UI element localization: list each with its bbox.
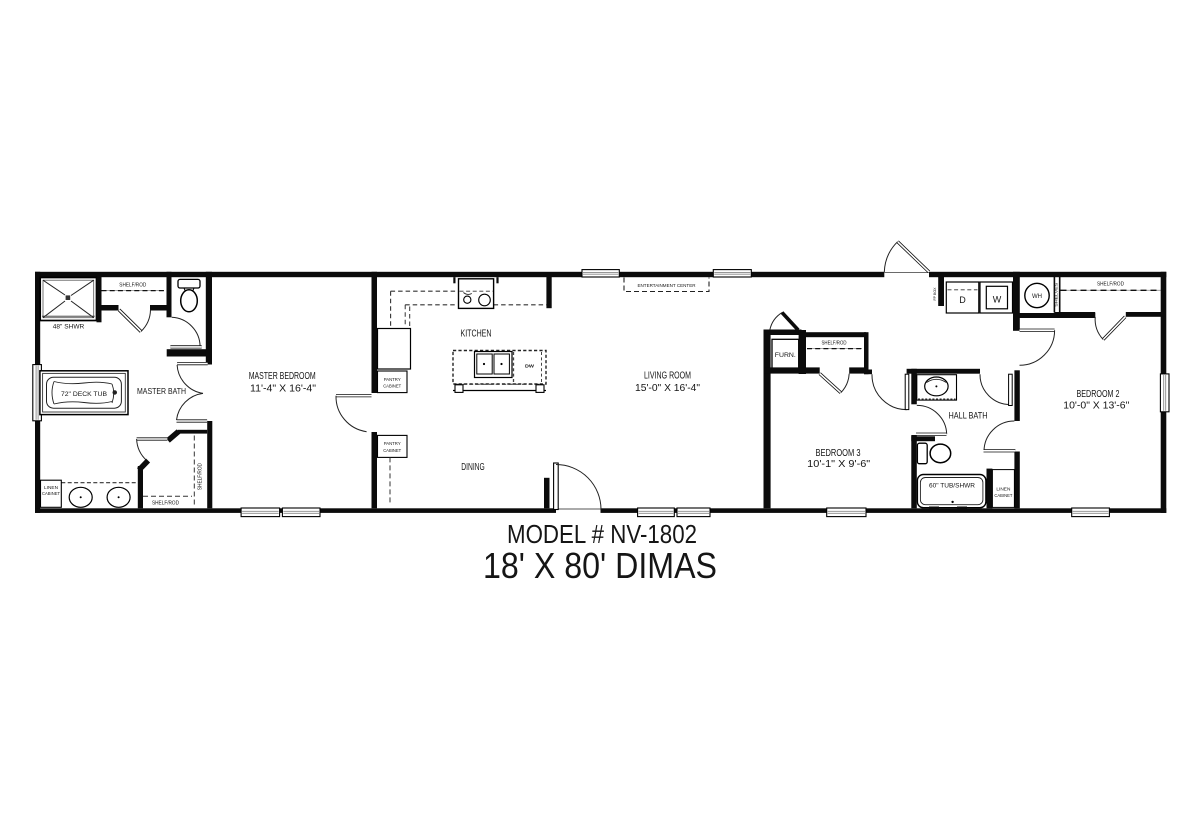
svg-text:DINING: DINING: [461, 462, 485, 473]
svg-text:SHELF/ROD: SHELF/ROD: [198, 463, 204, 490]
svg-text:72" DECK TUB: 72" DECK TUB: [61, 391, 107, 398]
svg-text:LINEN: LINEN: [44, 485, 58, 490]
svg-text:48" SHWR: 48" SHWR: [53, 324, 85, 331]
svg-text:10'-1" X 9'-6": 10'-1" X 9'-6": [807, 459, 870, 470]
svg-text:PANTRY: PANTRY: [384, 441, 401, 446]
svg-text:11'-4" X 16'-4": 11'-4" X 16'-4": [250, 383, 316, 395]
svg-text:SHELF/ROD: SHELF/ROD: [822, 341, 847, 347]
svg-text:MASTER BATH: MASTER BATH: [137, 386, 186, 396]
svg-text:10'-0" X 13'-6": 10'-0" X 13'-6": [1063, 400, 1129, 411]
svg-text:SHELF/ROD: SHELF/ROD: [1097, 282, 1124, 288]
svg-text:ENTERTAINMENT CENTER: ENTERTAINMENT CENTER: [638, 283, 697, 288]
svg-text:SHELVES: SHELVES: [1054, 282, 1058, 307]
svg-text:BEDROOM 2: BEDROOM 2: [1077, 389, 1120, 400]
svg-text:CABINET: CABINET: [994, 493, 1012, 498]
svg-text:15'-0" X 16'-4": 15'-0" X 16'-4": [635, 382, 700, 394]
svg-text:LINEN: LINEN: [996, 487, 1010, 492]
svg-text:FURN.: FURN.: [775, 352, 796, 359]
svg-text:PANTRY: PANTRY: [384, 377, 401, 382]
svg-text:60" TUB/SHWR: 60" TUB/SHWR: [929, 483, 975, 490]
svg-text:WH: WH: [1032, 294, 1042, 300]
svg-text:CABINET: CABINET: [42, 491, 60, 496]
svg-text:CABINET: CABINET: [383, 448, 401, 453]
svg-text:BEDROOM 3: BEDROOM 3: [816, 448, 861, 459]
svg-text:FP BOX: FP BOX: [933, 287, 937, 301]
svg-text:18' X 80' DIMAS: 18' X 80' DIMAS: [483, 545, 717, 586]
svg-text:SHELF/ROD: SHELF/ROD: [152, 501, 179, 507]
svg-text:D: D: [959, 295, 966, 305]
svg-text:CABINET: CABINET: [383, 384, 401, 389]
svg-text:MASTER BEDROOM: MASTER BEDROOM: [249, 370, 316, 382]
svg-text:HALL BATH: HALL BATH: [949, 411, 988, 421]
svg-text:SHELF/ROD: SHELF/ROD: [119, 283, 146, 289]
svg-text:LIVING ROOM: LIVING ROOM: [644, 370, 691, 382]
svg-text:DW: DW: [525, 364, 535, 370]
svg-text:KITCHEN: KITCHEN: [461, 328, 492, 339]
svg-text:W: W: [993, 295, 1002, 305]
